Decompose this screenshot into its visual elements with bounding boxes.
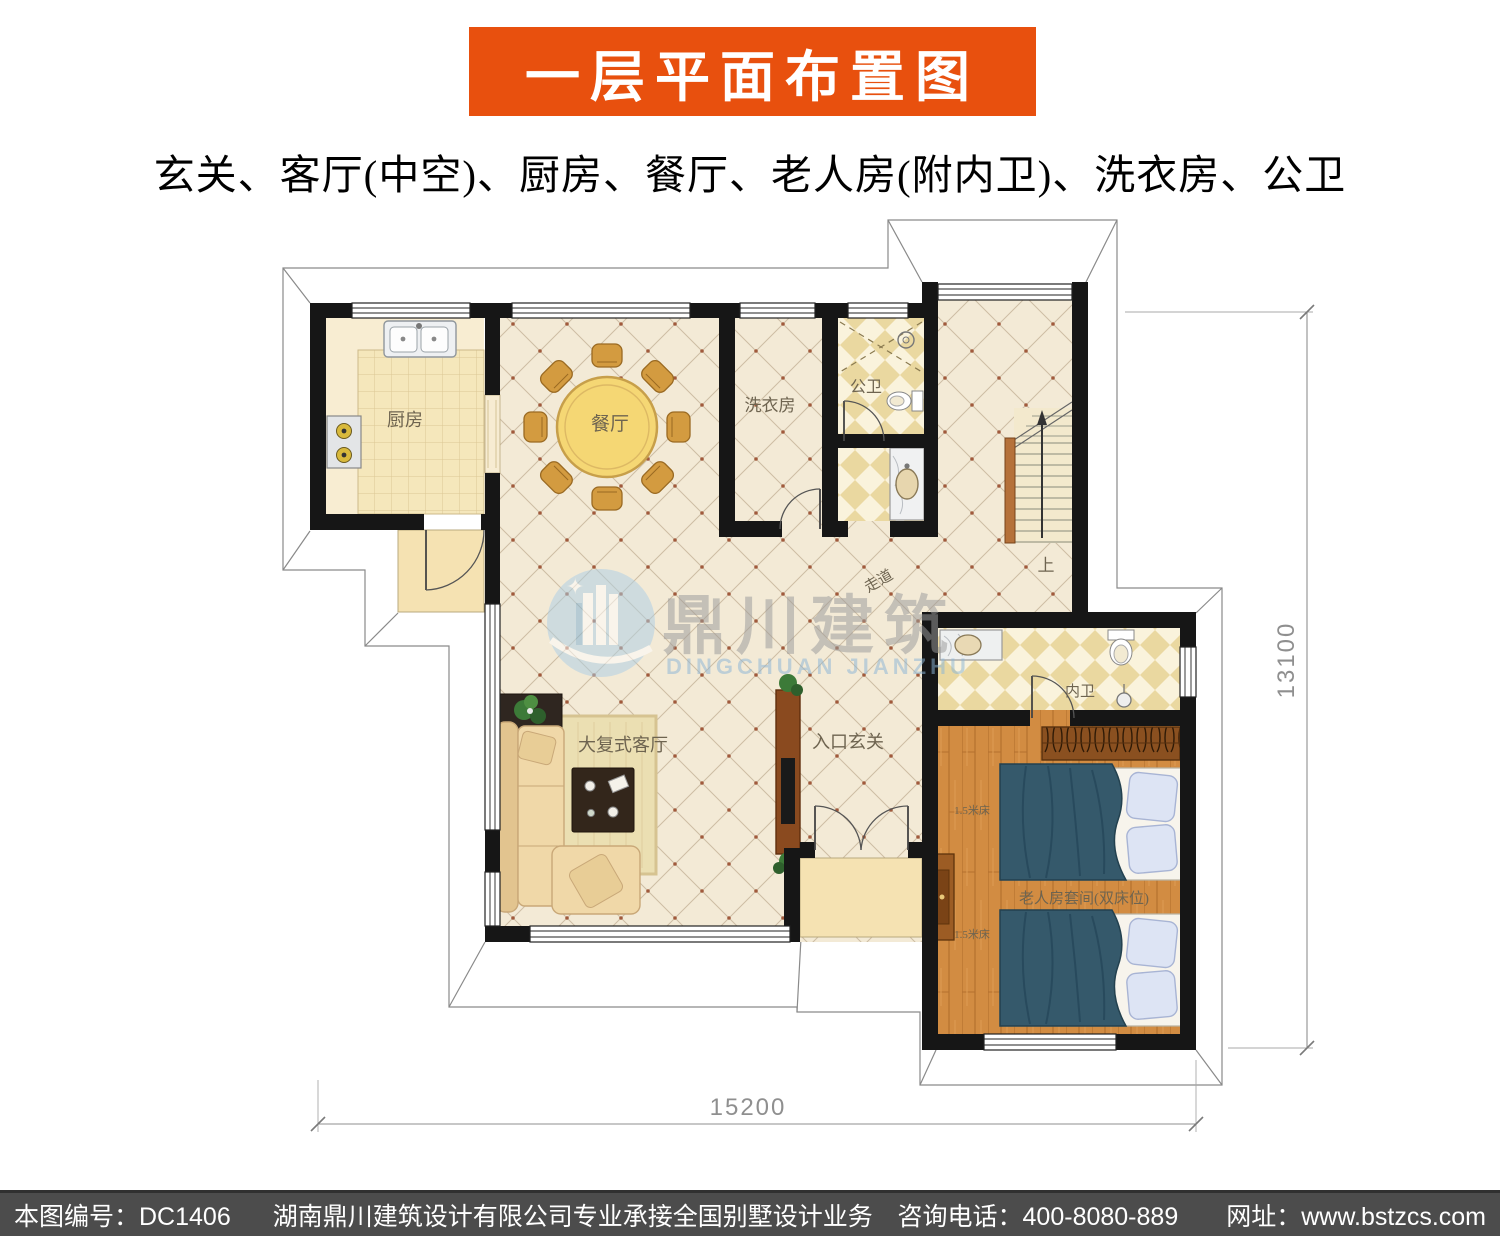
room-label-public-bath: 公卫 xyxy=(850,379,882,396)
stairs xyxy=(1005,402,1072,543)
room-label-inner-bath: 内卫 xyxy=(1065,683,1095,700)
watermark-logo-icon: ✦ xyxy=(547,569,655,677)
bed xyxy=(1000,764,1184,880)
kitchen-stove xyxy=(327,416,361,468)
plan-title: 一层平面布置图 xyxy=(525,32,980,112)
floor-plan-page: 厨房 餐厅 洗衣房 公卫 走道 上 大复式客厅 入口玄关 内卫 老人房套间(双床… xyxy=(0,0,1500,1236)
bed xyxy=(1000,910,1184,1026)
dimension-height: 13100 xyxy=(1273,622,1300,699)
living-room-furniture xyxy=(496,694,656,914)
room-label-kitchen: 厨房 xyxy=(387,410,423,430)
bed-size-label-1: 1.5米床 xyxy=(954,803,990,817)
room-label-laundry: 洗衣房 xyxy=(745,396,796,415)
kitchen-sink xyxy=(384,321,456,357)
plan-subtitle: 玄关、客厅(中空)、厨房、餐厅、老人房(附内卫)、洗衣房、公卫 xyxy=(0,141,1500,201)
dimension-width: 15200 xyxy=(710,1094,787,1121)
drawing-code: 本图编号：DC1406 xyxy=(14,1197,231,1233)
room-label-dining: 餐厅 xyxy=(591,413,629,435)
watermark-en-text: DINGCHUAN JIANZHU xyxy=(666,654,970,679)
footer-bar: 本图编号：DC1406 湖南鼎川建筑设计有限公司专业承接全国别墅设计业务 咨询电… xyxy=(0,1190,1500,1236)
watermark-cn-text: 鼎川建筑 xyxy=(662,590,958,662)
room-label-elder-room: 老人房套间(双床位) xyxy=(1019,890,1149,907)
room-label-entry: 入口玄关 xyxy=(812,732,884,752)
tv-feature-wall xyxy=(773,674,803,874)
phone-number: 咨询电话：400-8080-889 xyxy=(898,1197,1179,1233)
svg-text:✦: ✦ xyxy=(566,574,584,599)
company-statement: 湖南鼎川建筑设计有限公司专业承接全国别墅设计业务 xyxy=(273,1197,873,1233)
bed-size-label-2: 1.5米床 xyxy=(954,927,990,941)
plan-title-banner: 一层平面布置图 xyxy=(469,27,1036,116)
wardrobe xyxy=(1042,727,1180,760)
room-label-stairs-up: 上 xyxy=(1038,556,1055,575)
room-label-living: 大复式客厅 xyxy=(578,735,668,755)
website-url: 网址：www.bstzcs.com xyxy=(1226,1197,1486,1233)
